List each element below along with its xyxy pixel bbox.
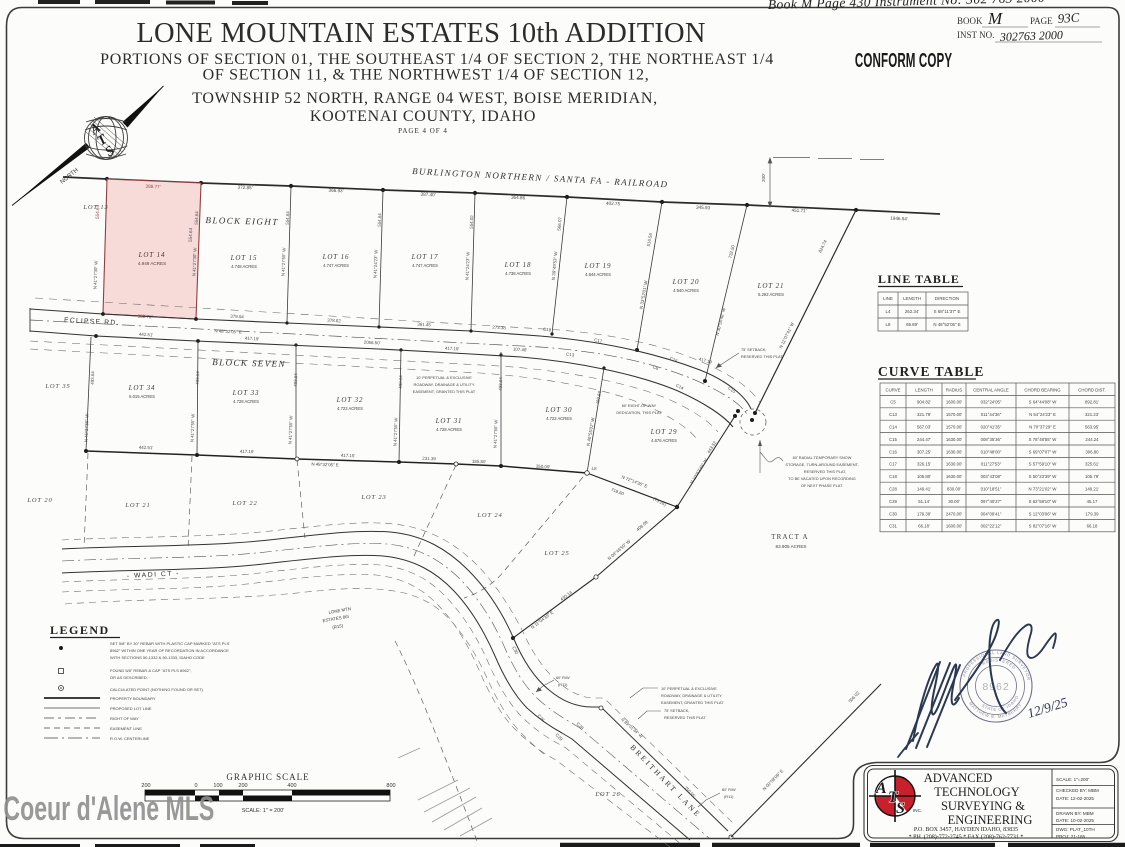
svg-text:100: 100 — [213, 783, 222, 789]
svg-text:LOT 34: LOT 34 — [128, 384, 156, 392]
svg-text:554.64: 554.64 — [194, 211, 199, 225]
svg-text:417.15': 417.15' — [341, 453, 356, 459]
svg-text:366.93': 366.93' — [328, 188, 343, 194]
svg-text:L8: L8 — [592, 466, 598, 471]
svg-text:CONFORM COPY: CONFORM COPY — [855, 50, 952, 72]
svg-text:S 68°11'37" E: S 68°11'37" E — [934, 309, 961, 314]
svg-text:60' R/W: 60' R/W — [556, 675, 570, 680]
svg-text:830.00': 830.00' — [947, 487, 961, 492]
svg-text:RADIUS: RADIUS — [946, 388, 962, 393]
svg-text:442.51': 442.51' — [139, 332, 154, 338]
svg-text:ENGINEERING: ENGINEERING — [948, 813, 1033, 827]
svg-text:CHORD DIST.: CHORD DIST. — [1078, 388, 1105, 393]
svg-text:N 48°52'05" E: N 48°52'05" E — [933, 322, 960, 327]
svg-text:244.47': 244.47' — [917, 437, 931, 442]
svg-text:LOT 29: LOT 29 — [650, 428, 678, 436]
svg-text:BLOCK EIGHT: BLOCK EIGHT — [205, 215, 278, 227]
svg-text:4.728 ACRES: 4.728 ACRES — [436, 427, 462, 432]
svg-text:200: 200 — [141, 783, 150, 789]
svg-text:N 41°27'55" W: N 41°27'55" W — [281, 247, 287, 277]
svg-text:417.19': 417.19' — [245, 336, 260, 342]
svg-text:C31: C31 — [889, 524, 897, 529]
svg-text:LOT 24: LOT 24 — [476, 512, 502, 519]
svg-text:4.722 ACRES: 4.722 ACRES — [546, 416, 572, 421]
svg-text:C18: C18 — [889, 474, 897, 479]
svg-text:8962" WITHIN ONE YEAR OF RECOR: 8962" WITHIN ONE YEAR OF RECORDATION IN … — [110, 648, 229, 653]
svg-text:1570.00': 1570.00' — [946, 425, 963, 430]
svg-text:105.79': 105.79' — [1085, 474, 1099, 479]
svg-text:1570.00': 1570.00' — [946, 412, 963, 417]
svg-text:N 48°32'05" E: N 48°32'05" E — [311, 462, 339, 468]
svg-text:CHORD BEARING: CHORD BEARING — [1024, 388, 1061, 393]
svg-text:008°35'36": 008°35'36" — [981, 437, 1002, 442]
svg-text:C13: C13 — [889, 412, 897, 417]
svg-text:LOT 33: LOT 33 — [232, 389, 260, 397]
svg-text:BOOK: BOOK — [957, 16, 983, 26]
svg-text:N 41°24'23" W: N 41°24'23" W — [465, 251, 471, 281]
svg-text:C30: C30 — [889, 511, 897, 516]
svg-text:388.77': 388.77' — [145, 184, 160, 190]
svg-text:020°41'35": 020°41'35" — [981, 425, 1002, 430]
svg-text:PAGE: PAGE — [1030, 16, 1053, 26]
svg-text:0: 0 — [194, 783, 197, 789]
svg-text:003°43'08": 003°43'08" — [981, 474, 1002, 479]
svg-text:345.93: 345.93 — [696, 205, 711, 211]
svg-text:179.39: 179.39 — [1085, 511, 1099, 516]
svg-text:307.25': 307.25' — [917, 449, 931, 454]
svg-text:LOT 23: LOT 23 — [360, 494, 386, 501]
svg-text:R.O.W. CENTERLINE: R.O.W. CENTERLINE — [110, 736, 150, 741]
svg-text:1600.00': 1600.00' — [946, 524, 963, 529]
svg-text:LOT 14: LOT 14 — [138, 251, 166, 259]
svg-text:TO BE VACATED UPON RECORDING: TO BE VACATED UPON RECORDING — [788, 476, 856, 481]
svg-text:DATE: 12-02-2025: DATE: 12-02-2025 — [1056, 796, 1094, 801]
svg-text:30.00': 30.00' — [948, 499, 960, 504]
svg-text:L4: L4 — [886, 309, 891, 314]
svg-text:LOT 16: LOT 16 — [322, 253, 350, 261]
svg-text:10' PERPETUAL & EXCLUSIVE: 10' PERPETUAL & EXCLUSIVE — [416, 375, 472, 380]
svg-text:C28: C28 — [889, 487, 897, 492]
svg-text:105.80': 105.80' — [917, 474, 931, 479]
svg-text:PAGE 4 OF 4: PAGE 4 OF 4 — [398, 127, 448, 135]
svg-text:93C: 93C — [1057, 9, 1080, 25]
svg-text:DRAWN BY: MBM: DRAWN BY: MBM — [1056, 811, 1094, 816]
svg-text:Coeur d'Alene MLS: Coeur d'Alene MLS — [3, 791, 214, 828]
svg-text:S 12°03'06" W: S 12°03'06" W — [1029, 511, 1058, 516]
svg-text:306.80: 306.80 — [1085, 449, 1099, 454]
svg-text:S 82°07'16" W: S 82°07'16" W — [1029, 524, 1058, 529]
svg-text:N 41°27'30" W: N 41°27'30" W — [93, 260, 99, 290]
svg-text:INST NO.: INST NO. — [957, 30, 994, 40]
svg-text:442.51': 442.51' — [139, 445, 154, 451]
svg-text:4.844 ACRES: 4.844 ACRES — [585, 272, 611, 277]
svg-text:LOT 31: LOT 31 — [435, 417, 463, 425]
svg-text:TOWNSHIP 52 NORTH, RANGE 04 WE: TOWNSHIP 52 NORTH, RANGE 04 WEST, BOISE … — [192, 90, 658, 107]
svg-text:402.75: 402.75 — [606, 201, 621, 207]
svg-text:417.19': 417.19' — [240, 449, 255, 455]
svg-text:231.39: 231.39 — [422, 456, 436, 461]
svg-text:PROJ: 21-165: PROJ: 21-165 — [1056, 834, 1086, 839]
svg-text:4.747 ACRES: 4.747 ACRES — [323, 263, 349, 268]
svg-text:302763 2000: 302763 2000 — [999, 28, 1063, 44]
svg-text:273.38: 273.38 — [492, 325, 506, 331]
svg-text:364.86: 364.86 — [511, 195, 526, 201]
svg-text:5.015 ACRES: 5.015 ACRES — [129, 394, 155, 399]
svg-text:WITH SECTIONS 50-1332 & 50-133: WITH SECTIONS 50-1332 & 50-1333, IDAHO C… — [110, 655, 205, 660]
svg-text:DWG: PLAT_10TH: DWG: PLAT_10TH — [1056, 827, 1095, 832]
svg-text:107.46': 107.46' — [513, 347, 528, 353]
svg-text:RESERVED THIS PLAT: RESERVED THIS PLAT — [741, 354, 783, 359]
svg-text:N 54°24'23" E: N 54°24'23" E — [1029, 412, 1056, 417]
svg-text:011°44'36": 011°44'36" — [981, 412, 1002, 417]
svg-text:* PH. (208)-772-2745 * FA: * PH. (208)-772-2745 * FAX (208)-762-773… — [909, 834, 1024, 841]
svg-text:DEDICATION, THIS PLAT: DEDICATION, THIS PLAT — [616, 410, 662, 415]
svg-text:149.41': 149.41' — [917, 487, 931, 492]
svg-text:KOOTENAI COUNTY, IDAHO: KOOTENAI COUNTY, IDAHO — [310, 108, 536, 125]
svg-text:326.15': 326.15' — [917, 462, 931, 467]
svg-text:EASEMENT, GRANTED THIS PLAT: EASEMENT, GRANTED THIS PLAT — [413, 389, 476, 394]
svg-text:LOT 21: LOT 21 — [757, 282, 785, 290]
svg-text:LOT 35: LOT 35 — [44, 383, 70, 390]
svg-text:(R11): (R11) — [558, 682, 568, 687]
svg-text:554.64: 554.64 — [377, 213, 382, 227]
svg-text:554.64: 554.64 — [285, 211, 290, 225]
svg-text:350.09': 350.09' — [536, 464, 551, 470]
svg-text:321.23': 321.23' — [1085, 412, 1099, 417]
svg-text:CALCULATED POINT (NOTHING FOUN: CALCULATED POINT (NOTHING FOUND OR SET) — [110, 687, 204, 692]
svg-text:STORAGE, TURN-AROUND EASEMENT,: STORAGE, TURN-AROUND EASEMENT, — [785, 462, 858, 467]
svg-text:493.64: 493.64 — [498, 377, 503, 391]
svg-text:417.19': 417.19' — [445, 346, 460, 352]
svg-text:378.62: 378.62 — [327, 318, 341, 324]
svg-text:032°24'05": 032°24'05" — [981, 400, 1002, 405]
svg-text:LINE TABLE: LINE TABLE — [878, 272, 960, 286]
svg-text:C18: C18 — [543, 327, 552, 333]
svg-text:244.24: 244.24 — [1085, 437, 1099, 442]
svg-text:262.34': 262.34' — [905, 309, 919, 314]
svg-text:904.82': 904.82' — [917, 400, 931, 405]
svg-text:400: 400 — [287, 783, 296, 789]
svg-text:66.18: 66.18 — [1087, 524, 1098, 529]
svg-text:4.747 ACRES: 4.747 ACRES — [412, 263, 438, 268]
svg-text:DATE: 10-02-2025: DATE: 10-02-2025 — [1056, 818, 1094, 823]
svg-text:OF SECTION 11, & THE NORTHWEST: OF SECTION 11, & THE NORTHWEST 1/4 OF SE… — [203, 67, 650, 84]
svg-text:1630.00': 1630.00' — [946, 462, 963, 467]
svg-text:1630.00': 1630.00' — [946, 474, 963, 479]
svg-text:DIRECTION: DIRECTION — [935, 296, 959, 301]
svg-text:LINE: LINE — [883, 296, 893, 301]
svg-text:LENGTH: LENGTH — [903, 296, 921, 301]
svg-text:S: S — [896, 800, 905, 817]
svg-text:010°48'00": 010°48'00" — [981, 449, 1002, 454]
svg-text:361.45: 361.45 — [417, 322, 431, 328]
svg-text:SET 5/8" BY 30" REBAR WITH PLA: SET 5/8" BY 30" REBAR WITH PLASTIC CAP M… — [110, 641, 230, 646]
svg-text:N 41°27'55" W: N 41°27'55" W — [288, 415, 294, 445]
svg-text:493.64: 493.64 — [293, 373, 298, 387]
svg-text:83.905 ACRES: 83.905 ACRES — [776, 544, 807, 549]
svg-text:(R11): (R11) — [724, 794, 734, 799]
svg-text:011°27'53": 011°27'53" — [981, 462, 1002, 467]
svg-text:N 41°24'23" W: N 41°24'23" W — [373, 249, 379, 279]
svg-text:149.21': 149.21' — [1085, 487, 1099, 492]
svg-text:451.71': 451.71' — [791, 208, 806, 214]
svg-text:LOT 30: LOT 30 — [545, 406, 573, 414]
svg-text:SCALE: 1" = 200': SCALE: 1" = 200' — [242, 808, 285, 814]
svg-text:INC.: INC. — [913, 808, 922, 813]
svg-text:N 41°27'55" W: N 41°27'55" W — [393, 417, 399, 447]
svg-text:60' RADIAL TEMPORARY SNOW: 60' RADIAL TEMPORARY SNOW — [793, 455, 852, 460]
svg-text:PORTIONS OF SECTION 01, THE SO: PORTIONS OF SECTION 01, THE SOUTHEAST 1/… — [100, 51, 774, 68]
svg-text:4.728 ACRES: 4.728 ACRES — [233, 399, 259, 404]
svg-text:1600.00': 1600.00' — [946, 400, 963, 405]
svg-text:75' SETBACK,: 75' SETBACK, — [664, 708, 689, 713]
svg-text:RESERVED THIS PLAT,: RESERVED THIS PLAT, — [804, 469, 846, 474]
svg-text:493.64: 493.64 — [90, 371, 95, 385]
svg-text:LOT 13: LOT 13 — [82, 204, 108, 211]
svg-text:OR AS DESCRIBED.: OR AS DESCRIBED. — [110, 675, 148, 680]
svg-text:179.39': 179.39' — [917, 511, 931, 516]
svg-text:N 41°27'55" W: N 41°27'55" W — [84, 413, 90, 443]
svg-text:75' SETBACK,: 75' SETBACK, — [741, 347, 766, 352]
svg-text:010°18'51": 010°18'51" — [981, 487, 1002, 492]
svg-text:2056.50': 2056.50' — [364, 340, 381, 346]
svg-text:60' R/W: 60' R/W — [722, 787, 736, 792]
svg-text:S 69°07'07" W: S 69°07'07" W — [1029, 449, 1058, 454]
svg-text:LOT 25: LOT 25 — [543, 550, 569, 557]
svg-text:2470.00': 2470.00' — [946, 511, 963, 516]
svg-text:L8: L8 — [886, 322, 891, 327]
svg-text:RIGHT OF WAY: RIGHT OF WAY — [110, 716, 139, 721]
svg-text:S 57°59'10" W: S 57°59'10" W — [1029, 462, 1058, 467]
svg-text:P.O. BOX 3457, HAYDEN IDAHO, 8: P.O. BOX 3457, HAYDEN IDAHO, 83835 — [914, 827, 1018, 833]
svg-text:379.94: 379.94 — [230, 314, 244, 320]
svg-text:4.723 ACRES: 4.723 ACRES — [337, 406, 363, 411]
svg-text:LOT 20: LOT 20 — [26, 497, 52, 504]
svg-text:554.02: 554.02 — [469, 215, 474, 229]
svg-text:TRACT A: TRACT A — [771, 533, 809, 541]
svg-text:LOT 21: LOT 21 — [124, 502, 150, 509]
svg-text:4.676 ACRES: 4.676 ACRES — [651, 438, 677, 443]
svg-text:N 73°21'02" W: N 73°21'02" W — [1029, 487, 1058, 492]
svg-text:LONE MOUNTAIN ESTATES 10th ADD: LONE MOUNTAIN ESTATES 10th ADDITION — [136, 18, 705, 49]
svg-text:387.40': 387.40' — [420, 192, 435, 198]
svg-text:372.85': 372.85' — [237, 185, 252, 191]
svg-text:800: 800 — [386, 783, 395, 789]
svg-text:66.18': 66.18' — [918, 524, 930, 529]
svg-text:LOT 19: LOT 19 — [584, 262, 612, 270]
svg-text:563.95': 563.95' — [1085, 425, 1099, 430]
svg-text:C17: C17 — [889, 462, 897, 467]
svg-text:EASEMENT LINE: EASEMENT LINE — [110, 726, 142, 731]
svg-text:004°09'41": 004°09'41" — [981, 511, 1002, 516]
svg-text:1946.54': 1946.54' — [890, 216, 908, 222]
svg-text:69.89': 69.89' — [906, 322, 918, 327]
svg-text:BLOCK SEVEN: BLOCK SEVEN — [212, 357, 286, 369]
svg-text:ADVANCED: ADVANCED — [924, 771, 993, 785]
svg-text:N 70°37'29" E: N 70°37'29" E — [1029, 425, 1056, 430]
svg-text:892.81': 892.81' — [1085, 400, 1099, 405]
svg-text:325.61': 325.61' — [1085, 462, 1099, 467]
svg-text:OF NEXT PHASE PLAT.: OF NEXT PHASE PLAT. — [801, 483, 843, 488]
svg-text:EASEMENT, GRANTED THIS PLAT: EASEMENT, GRANTED THIS PLAT — [661, 700, 724, 705]
svg-text:ROADWAY, DRAINAGE & UTILITY: ROADWAY, DRAINAGE & UTILITY — [661, 693, 722, 698]
svg-text:LOT 17: LOT 17 — [411, 253, 439, 261]
svg-text:45.17: 45.17 — [1087, 499, 1098, 504]
svg-text:097°40'27": 097°40'27" — [981, 499, 1002, 504]
svg-text:S 78°48'55" W: S 78°48'55" W — [1029, 437, 1058, 442]
svg-text:S 50°23'39" W: S 50°23'39" W — [1029, 474, 1058, 479]
svg-text:S 64°44'08" W: S 64°44'08" W — [1029, 400, 1058, 405]
svg-text:LOT 22: LOT 22 — [231, 500, 257, 507]
svg-text:ROADWAY, DRAINAGE & UTILITY: ROADWAY, DRAINAGE & UTILITY — [414, 382, 475, 387]
svg-text:CENTRAL ANGLE: CENTRAL ANGLE — [973, 388, 1009, 393]
svg-text:LOT 32: LOT 32 — [336, 396, 364, 404]
svg-text:002°22'12": 002°22'12" — [981, 524, 1002, 529]
svg-text:6.292 ACRES: 6.292 ACRES — [758, 292, 784, 297]
svg-text:C5: C5 — [890, 400, 896, 405]
svg-text:4.949 ACRES: 4.949 ACRES — [138, 261, 166, 266]
svg-text:10' PERPETUAL & EXCLUSIVE: 10' PERPETUAL & EXCLUSIVE — [661, 686, 717, 691]
svg-text:LENGTH: LENGTH — [915, 388, 932, 393]
svg-text:N 41°27'55" W: N 41°27'55" W — [493, 419, 499, 449]
svg-text:CURVE TABLE: CURVE TABLE — [878, 364, 984, 379]
svg-text:200: 200 — [238, 783, 247, 789]
svg-text:60' RIGHT-OF-WAY: 60' RIGHT-OF-WAY — [622, 403, 657, 408]
svg-text:SURVEYING &: SURVEYING & — [941, 799, 1025, 813]
svg-text:TECHNOLOGY: TECHNOLOGY — [934, 785, 1019, 799]
svg-text:SCALE: 1"=200': SCALE: 1"=200' — [1056, 777, 1089, 782]
svg-text:567.03': 567.03' — [917, 425, 931, 430]
svg-text:M: M — [987, 9, 1003, 28]
svg-text:LEGEND: LEGEND — [50, 623, 110, 637]
svg-text:CURVE: CURVE — [886, 388, 901, 393]
svg-text:8962: 8962 — [982, 681, 1009, 693]
svg-text:185.80': 185.80' — [472, 459, 487, 465]
svg-text:4.940 ACRES: 4.940 ACRES — [673, 288, 699, 293]
svg-text:1630.00': 1630.00' — [946, 437, 963, 442]
svg-text:554.64: 554.64 — [188, 227, 194, 242]
svg-text:493.64: 493.64 — [398, 375, 403, 389]
svg-text:PROPERTY BOUNDARY: PROPERTY BOUNDARY — [110, 696, 156, 701]
svg-text:LOT 18: LOT 18 — [504, 261, 532, 269]
svg-text:51.14': 51.14' — [918, 499, 930, 504]
svg-text:200': 200' — [761, 173, 766, 182]
svg-text:LOT 20: LOT 20 — [672, 278, 700, 286]
svg-text:1630.00': 1630.00' — [946, 449, 963, 454]
svg-text:493.64: 493.64 — [195, 371, 200, 385]
svg-text:C29: C29 — [889, 499, 897, 504]
svg-text:S 62°58'10" W: S 62°58'10" W — [1029, 499, 1058, 504]
svg-text:C14: C14 — [889, 425, 897, 430]
svg-text:GRAPHIC SCALE: GRAPHIC SCALE — [226, 772, 309, 782]
svg-text:RESERVED THIS PLAT: RESERVED THIS PLAT — [664, 715, 706, 720]
svg-text:FOUND 5/8" REBAR & CAP "ATS PL: FOUND 5/8" REBAR & CAP "ATS PLS 8962", — [110, 668, 191, 673]
svg-text:CHECKED BY: MBM: CHECKED BY: MBM — [1056, 788, 1099, 793]
svg-text:LOT 15: LOT 15 — [230, 254, 258, 262]
svg-text:N 41°27'30" W: N 41°27'30" W — [192, 247, 198, 277]
svg-text:N 41°27'55" W: N 41°27'55" W — [190, 413, 196, 443]
svg-text:PROPOSED LOT LINE: PROPOSED LOT LINE — [110, 706, 152, 711]
svg-text:C16: C16 — [889, 449, 897, 454]
svg-text:C15: C15 — [889, 437, 897, 442]
svg-text:4.748 ACRES: 4.748 ACRES — [231, 264, 257, 269]
svg-text:4.738 ACRES: 4.738 ACRES — [505, 271, 531, 276]
svg-text:321.79': 321.79' — [917, 412, 931, 417]
svg-text:A: A — [875, 780, 887, 797]
